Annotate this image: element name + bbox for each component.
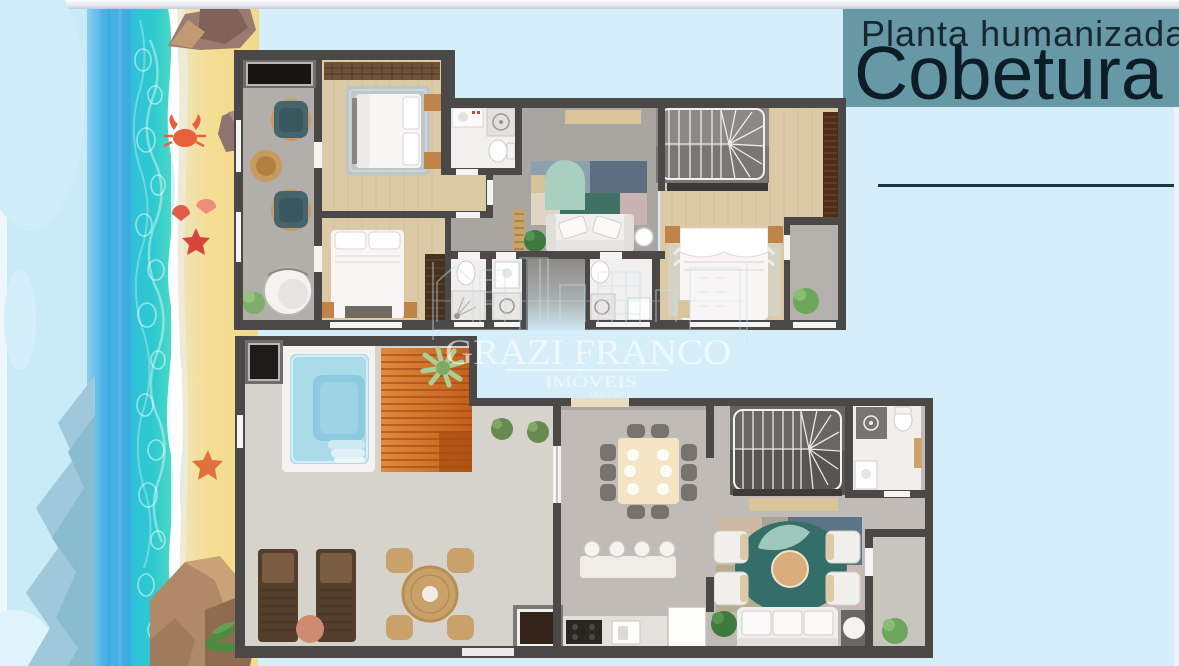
svg-text:IMÓVEIS: IMÓVEIS <box>545 372 637 391</box>
svg-text:Cobetura: Cobetura <box>854 31 1163 115</box>
svg-text:CRECI 34793: CRECI 34793 <box>590 391 630 399</box>
svg-text:GRAZI FRANCO: GRAZI FRANCO <box>445 332 731 372</box>
